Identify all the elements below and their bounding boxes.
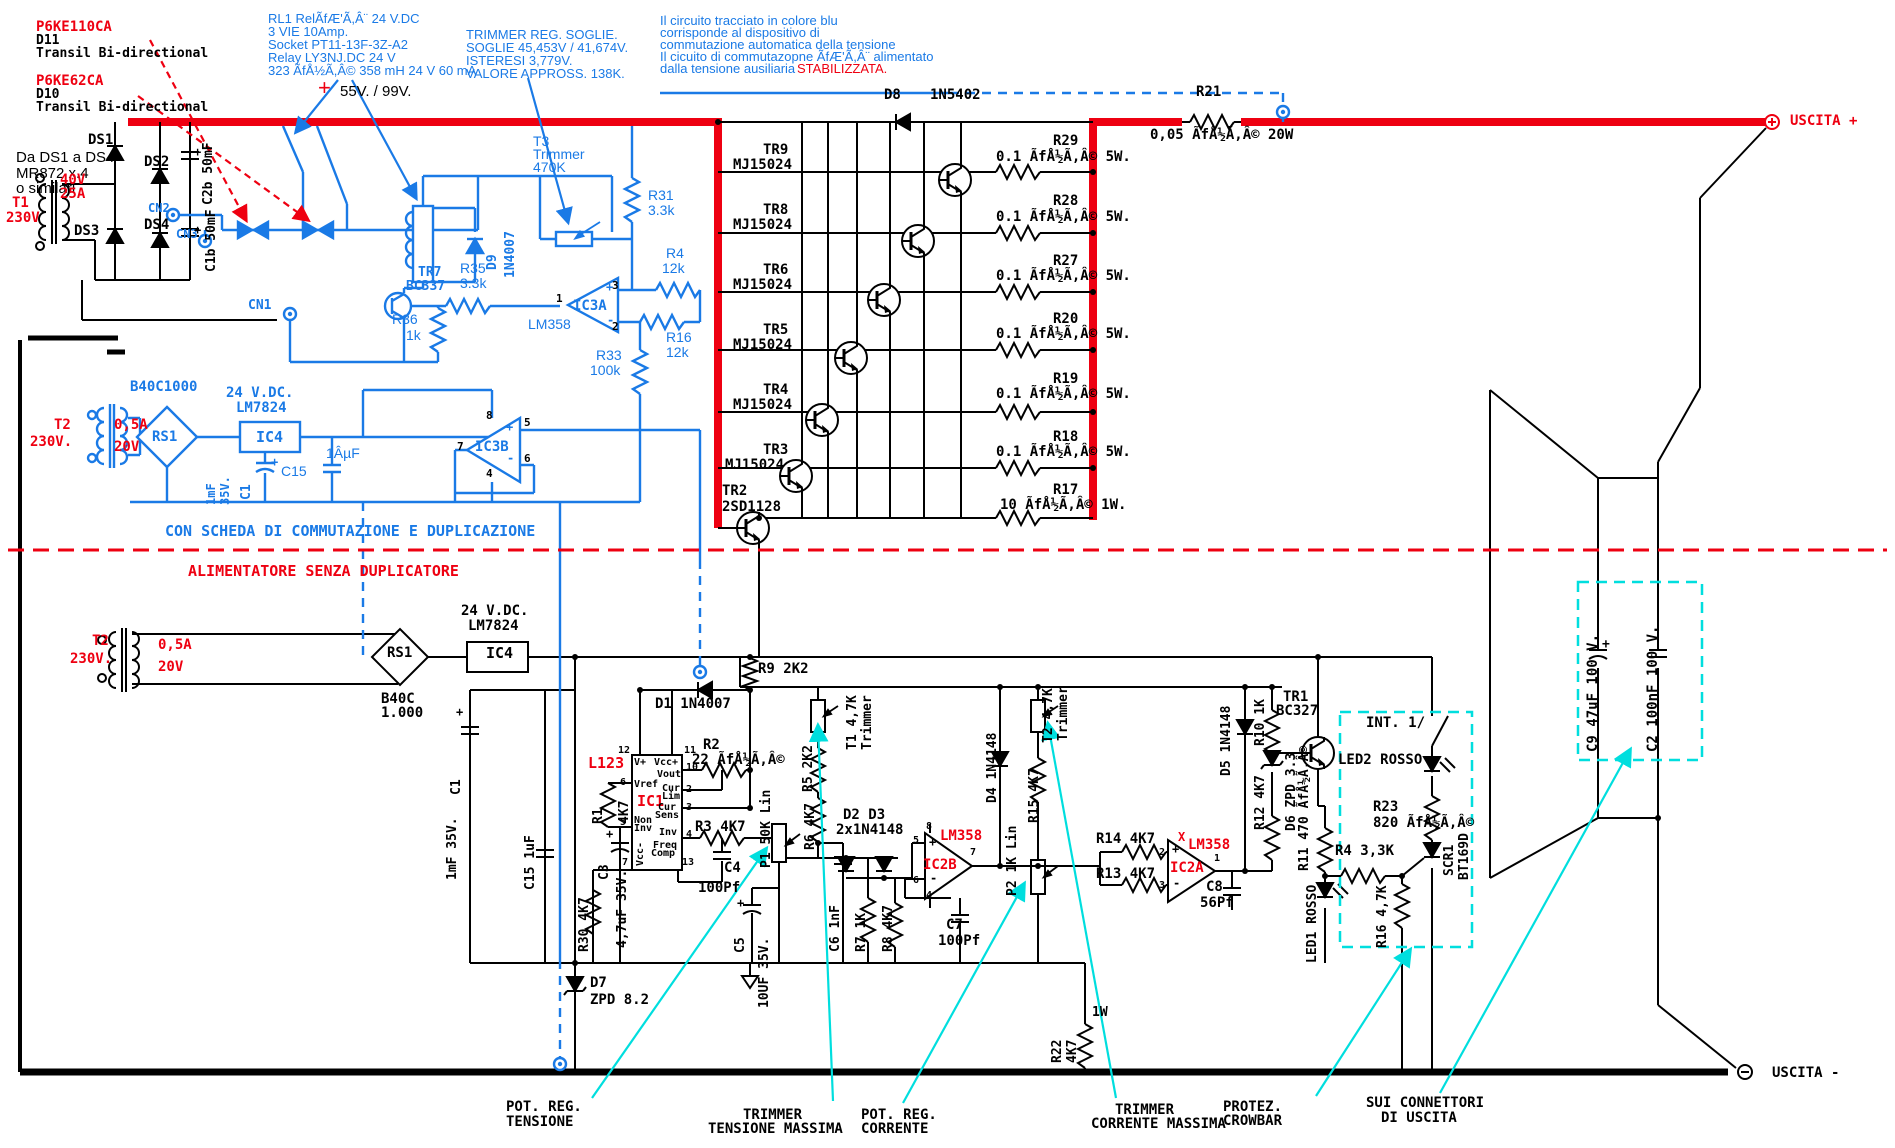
schematic-label: VALORE APPROSS. 138K. bbox=[466, 67, 625, 81]
schematic-label: R3 4K7 bbox=[695, 820, 746, 835]
schematic-label: 22 ÃfÅ½Ã,Â© bbox=[692, 753, 785, 768]
schematic-label: D8 bbox=[884, 88, 901, 103]
schematic-label: TR8 bbox=[763, 203, 788, 218]
schematic-label: + bbox=[318, 76, 331, 99]
schematic-label: 2 bbox=[1159, 848, 1165, 859]
schematic-label: 8 bbox=[926, 822, 932, 833]
schematic-label: 0.1 ÃfÅ½Ã,Â© 5W. bbox=[996, 445, 1131, 460]
schematic-label: R12 4K7 bbox=[1254, 775, 1268, 830]
schematic-label: C4 bbox=[724, 861, 741, 876]
schematic-label: X bbox=[1178, 831, 1185, 844]
schematic-label: Inv bbox=[634, 824, 652, 835]
schematic-label: TR6 bbox=[763, 263, 788, 278]
schematic-label: - bbox=[1173, 877, 1180, 890]
schematic-label: 0.1 ÃfÅ½Ã,Â© 5W. bbox=[996, 269, 1131, 284]
schematic-label: 0.1 ÃfÅ½Ã,Â© 5W. bbox=[996, 210, 1131, 225]
schematic-label: DI USCITA bbox=[1381, 1111, 1457, 1126]
schematic-label: BC327 bbox=[1276, 704, 1318, 719]
schematic-label: R16 bbox=[666, 330, 692, 345]
schematic-label: IC2B bbox=[923, 858, 957, 873]
schematic-label: 6 bbox=[620, 778, 626, 789]
schematic-label: LM358 bbox=[528, 317, 571, 332]
uscita-plus-terminal bbox=[1765, 115, 1779, 129]
schematic-label: + bbox=[194, 224, 201, 237]
uscita-minus-label: USCITA - bbox=[1772, 1066, 1839, 1081]
schematic-label: 8 bbox=[486, 410, 493, 422]
schematic-label: + bbox=[606, 828, 613, 841]
schematic-label: 24 V.DC. bbox=[461, 604, 528, 619]
schematic-label: 20V bbox=[114, 440, 139, 455]
schematic-label: TR2 bbox=[722, 484, 747, 499]
schematic-label: Lim bbox=[662, 792, 680, 803]
schematic-label: LED1 ROSSO bbox=[1306, 885, 1320, 963]
schematic-label: R4 bbox=[666, 246, 684, 261]
schematic-label: D9 bbox=[486, 254, 500, 270]
schematic-label: 323 ÃfÅ½Ã,Â© 358 mH 24 V 60 mA bbox=[268, 64, 476, 78]
schematic-label: Transil Bi-directional bbox=[36, 47, 208, 61]
schematic-label: TR5 bbox=[763, 323, 788, 338]
schematic-label: 24 V.DC. bbox=[226, 386, 293, 401]
note-senza-duplicatore: ALIMENTATORE SENZA DUPLICATORE bbox=[188, 564, 459, 580]
schematic-label: R18 bbox=[1053, 430, 1078, 445]
schematic-label: D4 1N4148 bbox=[986, 733, 1000, 803]
schematic-label: R36 bbox=[392, 312, 418, 327]
schematic-label: T1 bbox=[12, 196, 29, 211]
schematic-label: MJ15024 bbox=[733, 158, 792, 173]
schematic-label: IC3A bbox=[573, 299, 607, 314]
schematic-label: R6 4K7 bbox=[804, 803, 818, 850]
schematic-label: DS2 bbox=[144, 155, 169, 170]
schematic-label: DS3 bbox=[74, 224, 99, 239]
schematic-label: STABILIZZATA. bbox=[797, 62, 887, 76]
schematic-label: 1 bbox=[556, 293, 563, 305]
schematic-label: - bbox=[507, 452, 514, 465]
schematic-label: R27 bbox=[1053, 254, 1078, 269]
schematic-label: 0,5A bbox=[158, 638, 192, 653]
schematic-label: 0,5A bbox=[114, 418, 148, 433]
schematic-label: 12k bbox=[662, 261, 685, 276]
schematic-label: TR7 bbox=[418, 266, 441, 280]
schematic-label: 100k bbox=[590, 363, 620, 378]
schematic-label: D2 D3 bbox=[843, 808, 885, 823]
schematic-label: 12 bbox=[618, 746, 630, 757]
schematic-label: 4,7uF 35V. bbox=[616, 870, 630, 948]
schematic-label: Trimmer bbox=[1057, 686, 1071, 741]
schematic-label: 4K7 bbox=[618, 801, 632, 824]
schematic-label: 1.000 bbox=[381, 706, 423, 721]
schematic-label: 470K bbox=[533, 160, 566, 175]
schematic-label: + bbox=[271, 456, 278, 469]
schematic-label: Vref bbox=[634, 780, 658, 791]
schematic-label: - bbox=[607, 314, 614, 327]
schematic-label: 0.1 ÃfÅ½Ã,Â© 5W. bbox=[996, 387, 1131, 402]
schematic-label: R1 bbox=[592, 808, 606, 824]
schematic-label: TR9 bbox=[763, 143, 788, 158]
schematic-label: 230V bbox=[6, 211, 40, 226]
schematic-label: 56Pf bbox=[1200, 896, 1234, 911]
schematic-label: 1mF bbox=[205, 483, 218, 505]
schematic-label: ZPD 8.2 bbox=[590, 993, 649, 1008]
schematic-label: MJ15024 bbox=[733, 398, 792, 413]
schematic-label: + bbox=[194, 146, 201, 159]
schematic-label: LED2 ROSSO bbox=[1338, 753, 1422, 768]
schematic-label: 4 bbox=[926, 891, 932, 902]
schematic-label: 6 bbox=[913, 876, 919, 887]
schematic-label: RS1 bbox=[387, 646, 412, 661]
schematic-label: 7 bbox=[970, 848, 976, 859]
schematic-label: 820 ÃfÅ½Ã,Â© bbox=[1373, 816, 1474, 831]
schematic-label: 13 bbox=[682, 858, 694, 869]
schematic-label: Comp bbox=[651, 849, 675, 860]
schematic-label: 1k bbox=[406, 328, 421, 343]
schematic-label: 35V. bbox=[219, 476, 232, 505]
schematic-label: 12k bbox=[666, 345, 689, 360]
schematic-label: R9 2K2 bbox=[758, 662, 809, 677]
schematic-label: LM358 bbox=[940, 829, 982, 844]
schematic-label: INT. 1/ bbox=[1366, 716, 1425, 731]
schematic-label: P2 1K Lin bbox=[1006, 826, 1020, 896]
schematic-label: + bbox=[737, 897, 744, 910]
schematic-label: BT169D bbox=[1458, 833, 1472, 880]
schematic-label: R15 4K7 bbox=[1028, 768, 1042, 823]
schematic-label: IC2A bbox=[1170, 861, 1204, 876]
schematic-label: 20V bbox=[158, 660, 183, 675]
schematic-label: Inv bbox=[659, 828, 677, 839]
schematic-label: R7 1K bbox=[855, 913, 869, 952]
schematic-label: DS4 bbox=[144, 218, 169, 233]
schematic-label: C15 bbox=[281, 464, 307, 479]
schematic-label: + bbox=[1602, 638, 1610, 652]
schematic-label: R35 bbox=[460, 261, 486, 276]
schematic-label: 7 bbox=[457, 441, 464, 453]
schematic-label: R10 1K bbox=[1254, 699, 1268, 746]
schematic-label: R13 4K7 bbox=[1096, 867, 1155, 882]
uscita-plus-label: USCITA + bbox=[1790, 114, 1857, 129]
schematic-label: CN2 bbox=[148, 202, 170, 215]
schematic-label: R5 2K2 bbox=[802, 745, 816, 792]
schematic-label: DS1 bbox=[88, 133, 113, 148]
schematic-label: BC337 bbox=[406, 280, 445, 294]
schematic-label: 5 bbox=[913, 836, 919, 847]
schematic-label: 10 ÃfÅ½Ã,Â© 1W. bbox=[1000, 498, 1126, 513]
schematic-label: LM358 bbox=[1188, 838, 1230, 853]
schematic-label: CORRENTE MASSIMA bbox=[1091, 1117, 1226, 1132]
schematic-label: TENSIONE bbox=[506, 1115, 573, 1130]
schematic-label: Trimmer bbox=[861, 695, 875, 750]
schematic-label: C1 bbox=[240, 484, 254, 500]
schematic-label: TR4 bbox=[763, 383, 788, 398]
schematic-label: Vout bbox=[657, 770, 681, 781]
schematic-label: 1N4007 bbox=[504, 231, 518, 278]
schematic-label: D7 bbox=[590, 976, 607, 991]
schematic-label: 3.3k bbox=[460, 276, 486, 291]
schematic-label: R20 bbox=[1053, 312, 1078, 327]
schematic-label: T1 4,7K bbox=[846, 695, 860, 750]
schematic-label: 25A bbox=[60, 187, 85, 202]
schematic-label: Vcc+ bbox=[654, 758, 678, 769]
schematic-label: CROWBAR bbox=[1223, 1114, 1282, 1129]
schematic-label: R31 bbox=[648, 188, 674, 203]
schematic-label: + bbox=[506, 421, 513, 434]
schematic-label: MJ15024 bbox=[733, 278, 792, 293]
schematic-label: - bbox=[930, 872, 937, 885]
schematic-label: 1N5402 bbox=[930, 88, 981, 103]
schematic-label: RS1 bbox=[152, 430, 177, 445]
schematic-label: IC4 bbox=[486, 646, 513, 662]
schematic-label: B40C1000 bbox=[130, 380, 197, 395]
schematic-label: C15 1uF bbox=[524, 835, 538, 890]
schematic-label: C1 bbox=[450, 779, 464, 795]
schematic-label: TR3 bbox=[763, 443, 788, 458]
schematic-label: R23 bbox=[1373, 800, 1398, 815]
schematic-label: 0.1 ÃfÅ½Ã,Â© 5W. bbox=[996, 327, 1131, 342]
schematic-label: SCR1 bbox=[1443, 845, 1457, 876]
schematic-label: V+ bbox=[634, 758, 646, 769]
schematic-label: C7 bbox=[946, 918, 963, 933]
schematic-label: T2 bbox=[92, 634, 109, 649]
schematic-label: R11 470 ÃfÅ½Ã,Â© bbox=[1298, 746, 1312, 871]
schematic-label: MJ15024 bbox=[733, 338, 792, 353]
schematic-label: IC3B bbox=[475, 440, 509, 455]
schematic-label: 55V. / 99V. bbox=[340, 84, 411, 100]
schematic-label: 100Pf bbox=[698, 881, 740, 896]
schematic-label: 3 bbox=[686, 803, 692, 814]
schematic-label: R30 4K7 bbox=[578, 897, 592, 952]
schematic-label: T2 bbox=[54, 418, 71, 433]
schematic-label: Da DS1 a DS4 bbox=[16, 150, 114, 166]
schematic-label: MJ15024 bbox=[725, 458, 784, 473]
schematic-label: + bbox=[606, 281, 613, 294]
schematic-label: + bbox=[1172, 843, 1179, 856]
schematic-label: 10UF 35V. bbox=[758, 938, 772, 1008]
schematic-label: C1b 50mF bbox=[205, 209, 219, 272]
schematic-label: R22 bbox=[1051, 1040, 1065, 1063]
schematic-label: 1ÂµF bbox=[326, 446, 360, 461]
schematic-label: 4 bbox=[686, 830, 692, 841]
schematic-label: Sens bbox=[655, 811, 679, 822]
schematic-canvas: P6KE110CAD11Transil Bi-directionalP6KE62… bbox=[0, 0, 1895, 1148]
schematic-label: 6 bbox=[524, 453, 531, 465]
schematic-label: R29 bbox=[1053, 134, 1078, 149]
schematic-label: 4 bbox=[486, 468, 493, 480]
schematic-label: MJ15024 bbox=[733, 218, 792, 233]
schematic-label: LM7824 bbox=[236, 401, 287, 416]
schematic-label: R2 bbox=[703, 738, 720, 753]
schematic-label: C6 1nF bbox=[829, 905, 843, 952]
schematic-label: 7 bbox=[622, 858, 628, 869]
note-con-scheda: CON SCHEDA DI COMMUTAZIONE E DUPLICAZION… bbox=[165, 524, 535, 540]
schematic-label: 230V. bbox=[30, 435, 72, 450]
schematic-label: R17 bbox=[1053, 483, 1078, 498]
schematic-label: C2 100nF 100 V. bbox=[1646, 626, 1661, 752]
schematic-label: R28 bbox=[1053, 194, 1078, 209]
schematic-label: 3 bbox=[1159, 881, 1165, 892]
schematic-label: T2 4,7K bbox=[1042, 688, 1056, 743]
schematic-label: D5 1N4148 bbox=[1220, 706, 1234, 776]
schematic-label: R19 bbox=[1053, 372, 1078, 387]
schematic-label: D1 1N4007 bbox=[655, 697, 731, 712]
schematic-label: L123 bbox=[588, 756, 624, 772]
schematic-label: 2 bbox=[686, 785, 692, 796]
schematic-label: 1W bbox=[1092, 1006, 1108, 1020]
schematic-label: 2x1N4148 bbox=[836, 823, 903, 838]
schematic-label: CORRENTE bbox=[861, 1122, 928, 1137]
schematic-label: R4 3,3K bbox=[1335, 844, 1394, 859]
schematic-label: + bbox=[456, 706, 463, 719]
schematic-label: Vcc- bbox=[636, 842, 647, 866]
schematic-label: 2SD1128 bbox=[722, 500, 781, 515]
schematic-label: R33 bbox=[596, 348, 622, 363]
schematic-label: P1 50K Lin bbox=[760, 790, 774, 868]
schematic-label: R16 4,7K bbox=[1376, 885, 1390, 948]
schematic-label: 1 bbox=[1214, 854, 1220, 865]
schematic-label: 0,05 ÃfÅ½Ã,Â© 20W bbox=[1150, 128, 1293, 143]
schematic-label: R21 bbox=[1196, 85, 1221, 100]
schematic-label: CN1 bbox=[248, 299, 271, 313]
schematic-label: 1mF 35V. bbox=[446, 817, 460, 880]
schematic-label: C9 47uF 100 V. bbox=[1586, 634, 1601, 752]
schematic-label: 5 bbox=[524, 417, 531, 429]
schematic-label: R14 4K7 bbox=[1096, 832, 1155, 847]
schematic-label: C3 bbox=[598, 864, 612, 880]
schematic-label: Transil Bi-directional bbox=[36, 101, 208, 115]
schematic-label: 4K7 bbox=[1066, 1040, 1080, 1063]
schematic-label: dalla tensione ausiliaria bbox=[660, 62, 795, 76]
schematic-label: 0.1 ÃfÅ½Ã,Â© 5W. bbox=[996, 150, 1131, 165]
schematic-label: + bbox=[929, 836, 936, 849]
schematic-label: C5 bbox=[734, 937, 748, 953]
caption-sui-connettori: SUI CONNETTORI bbox=[1366, 1096, 1484, 1111]
caption-pot-reg-tensione: POT. REG. bbox=[506, 1100, 582, 1115]
schematic-label: R8 4K7 bbox=[882, 905, 896, 952]
schematic-label: IC4 bbox=[256, 430, 283, 446]
schematic-label: 3.3k bbox=[648, 203, 674, 218]
schematic-label: 100Pf bbox=[938, 934, 980, 949]
schematic-label: C2b 50mF bbox=[202, 142, 216, 205]
schematic-label: LM7824 bbox=[468, 619, 519, 634]
schematic-label: TENSIONE MASSIMA bbox=[708, 1122, 843, 1137]
schematic-label: C8 bbox=[1206, 880, 1223, 895]
schematic-label: 230V. bbox=[70, 652, 112, 667]
